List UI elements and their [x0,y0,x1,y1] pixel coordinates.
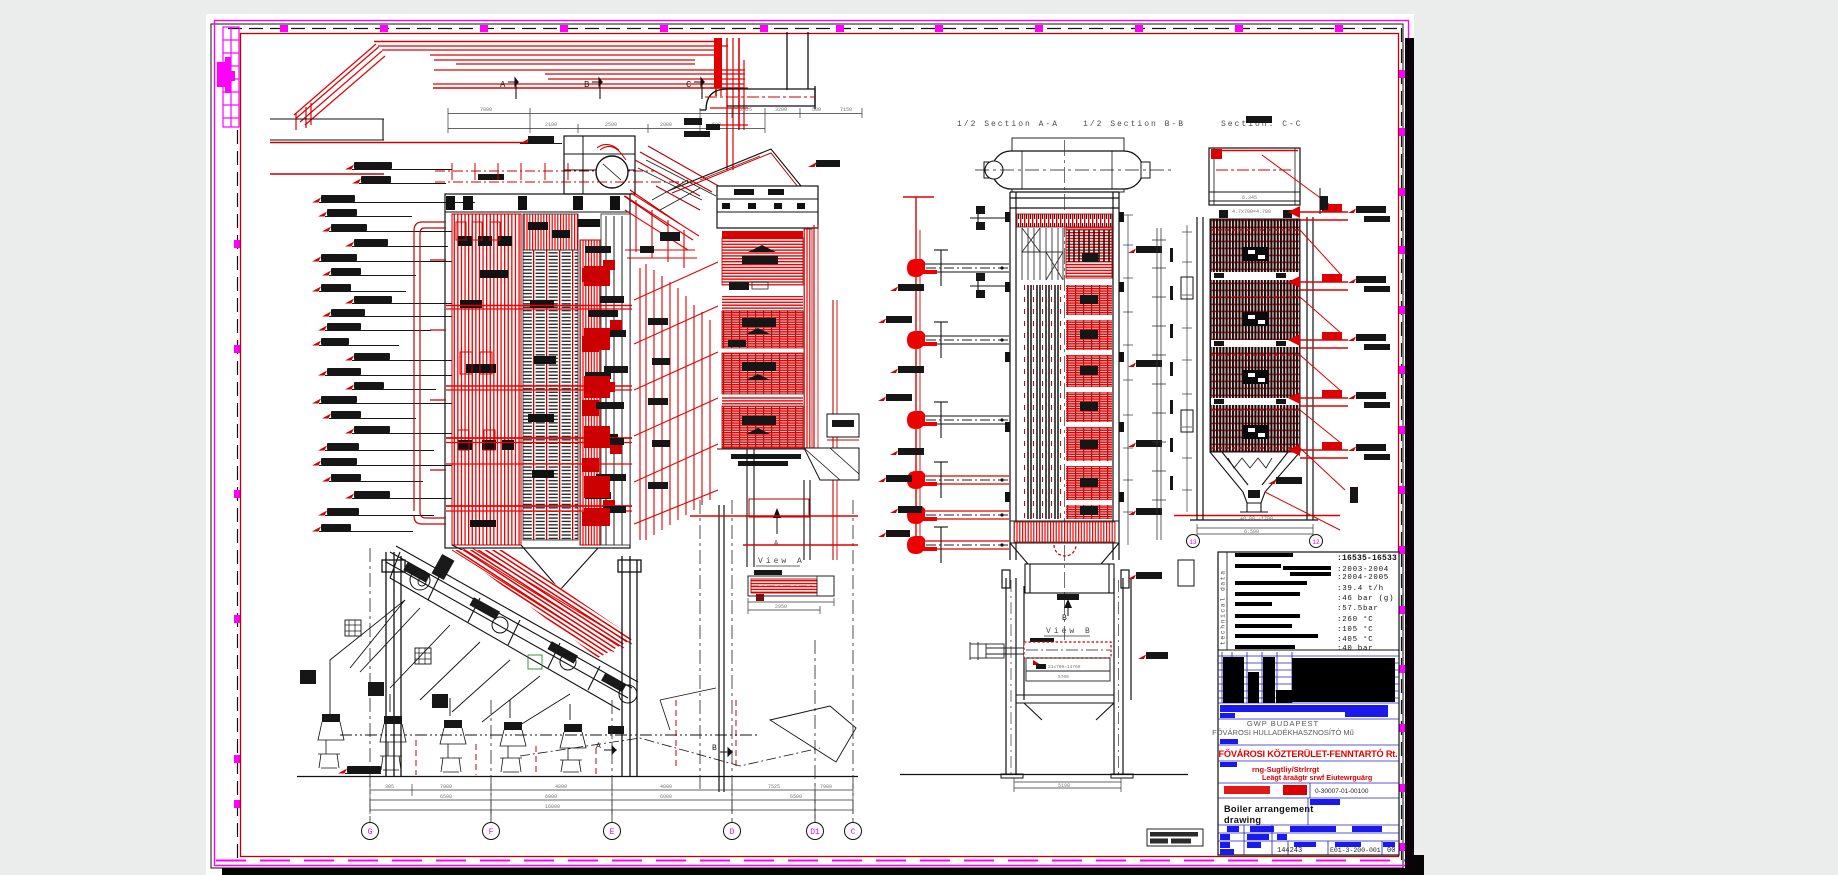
svg-text:2000: 2000 [660,122,672,128]
svg-text::405 °C: :405 °C [1337,635,1373,644]
svg-text:7980: 7980 [440,784,452,790]
svg-text:7000: 7000 [480,107,492,113]
svg-text::260 °C: :260 °C [1337,615,1373,624]
svg-text:C: C [686,80,692,90]
svg-text:500: 500 [812,107,821,113]
svg-text::105 °C: :105 °C [1337,625,1373,634]
svg-text:FŐVÁROSI HULLADÉKHASZNOSÍTÓ Mű: FŐVÁROSI HULLADÉKHASZNOSÍTÓ Mű [1212,728,1354,737]
svg-text:5700: 5700 [1058,674,1069,680]
svg-text:E01-3-200-001: E01-3-200-001 [1330,847,1381,854]
svg-text:C: C [851,828,856,837]
svg-text:FŐVÁROSI KÖZTERÜLET-FENNTARTÓ: FŐVÁROSI KÖZTERÜLET-FENNTARTÓ Rt. [1218,748,1397,759]
svg-text:6500: 6500 [790,794,802,800]
svg-text:4.7x700=4.700: 4.7x700=4.700 [1232,209,1271,215]
svg-text:A: A [596,742,601,751]
svg-text:6.345: 6.345 [1242,195,1257,201]
svg-text:1/2 Section B-B: 1/2 Section B-B [1083,120,1185,129]
svg-text:16000: 16000 [545,804,560,810]
svg-text:144243: 144243 [1277,847,1302,855]
svg-text:21x700=14700: 21x700=14700 [1048,664,1081,670]
svg-text:D1: D1 [810,828,820,837]
svg-text:3200: 3200 [775,107,787,113]
svg-text:2100: 2100 [545,122,557,128]
svg-text:13: 13 [1189,539,1197,546]
svg-text::2003-2004: :2003-2004 [1337,566,1389,574]
svg-text:2500: 2500 [605,122,617,128]
svg-text:B: B [1062,614,1067,623]
svg-text:7150: 7150 [840,107,852,113]
svg-text:Leägt äraägtr srwf Eiutewrguär: Leägt äraägtr srwf Eiutewrguärg [1262,773,1372,782]
svg-text:F: F [489,828,494,837]
svg-text:6500: 6500 [440,794,452,800]
svg-text:12: 12 [1312,539,1320,546]
svg-text::2004-2005: :2004-2005 [1337,574,1389,582]
svg-text:View A: View A [758,557,805,566]
svg-text::57.5bar: :57.5bar [1337,605,1379,613]
svg-text:6000: 6000 [545,794,557,800]
svg-text:2950: 2950 [775,604,787,610]
svg-text:GWP BUDAPEST: GWP BUDAPEST [1247,719,1319,728]
svg-text:7980: 7980 [820,784,832,790]
svg-text:Boiler arrangement: Boiler arrangement [1224,804,1314,814]
svg-text:4800: 4800 [555,784,567,790]
svg-text:A: A [774,540,780,548]
svg-text:5198: 5198 [1058,783,1070,789]
svg-text:1/2 Section A-A: 1/2 Section A-A [957,120,1059,129]
svg-text:2625: 2625 [740,107,752,113]
svg-text:E: E [610,828,615,837]
svg-text::40 bar: :40 bar [1337,645,1373,653]
svg-text:B: B [712,744,717,753]
svg-text:305: 305 [385,784,394,790]
svg-text:View B: View B [1046,627,1093,636]
svg-text:4000: 4000 [660,784,672,790]
svg-text::39.4 t/h: :39.4 t/h [1337,585,1384,593]
svg-text::46 bar (g): :46 bar (g) [1337,595,1394,603]
svg-text:G: G [368,828,373,837]
svg-text:D: D [730,828,735,837]
svg-text:+0.00 -1700: +0.00 -1700 [1240,516,1273,522]
svg-text:7525: 7525 [768,784,780,790]
svg-text:0-30007-01-00100: 0-30007-01-00100 [1315,788,1369,795]
svg-text:technical data: technical data [1220,569,1227,645]
svg-text:A: A [500,80,506,90]
svg-text:00: 00 [1387,847,1395,855]
svg-text:6.500: 6.500 [1244,529,1259,535]
svg-text:drawing: drawing [1224,815,1261,825]
svg-text:6000: 6000 [660,794,672,800]
svg-text:B: B [584,80,590,90]
svg-text::16535-16533: :16535-16533 [1337,554,1397,563]
